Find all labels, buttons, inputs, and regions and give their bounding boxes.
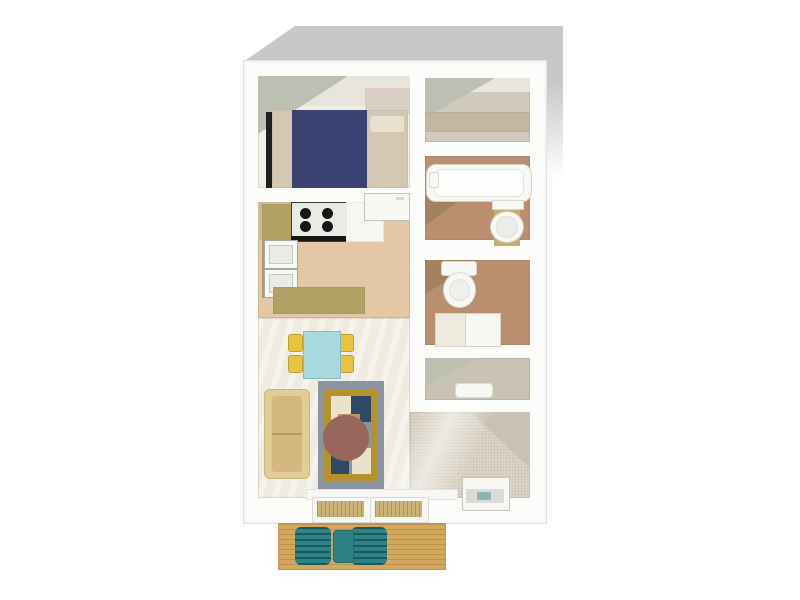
closet-upper-shelf (425, 112, 530, 132)
floor-unit-detail (477, 492, 491, 500)
rug-center-circle (323, 415, 369, 461)
dining-chair (288, 355, 303, 373)
wall-oven-upper-door (269, 245, 293, 264)
wc-cabinet-left (435, 313, 467, 347)
sliding-door-screen (375, 501, 422, 517)
bed-headboard (266, 112, 272, 188)
bed-duvet (292, 110, 367, 188)
towel-shelf (492, 200, 524, 210)
stove-burner (322, 221, 333, 232)
patio-chair (351, 527, 387, 565)
bathtub-basin (434, 169, 524, 197)
stove-burner (322, 208, 333, 219)
stove-front (291, 236, 349, 241)
floorplan-canvas (0, 0, 800, 600)
dining-chair (288, 334, 303, 352)
closet-lower-item (455, 383, 493, 398)
patio-chair (295, 527, 331, 565)
sliding-door-screen (317, 501, 364, 517)
bed-pillow (370, 116, 404, 132)
stove-burner (300, 208, 311, 219)
peninsula-counter (273, 287, 365, 314)
refrigerator-handle (396, 197, 404, 200)
wc-cabinet-right (465, 313, 501, 347)
toilet-seat (449, 279, 470, 301)
bathtub-faucet (429, 172, 439, 188)
dining-chair (339, 355, 354, 373)
sink-bowl (496, 216, 518, 238)
backdrop-shadow-top (243, 26, 563, 62)
patio-table (333, 530, 354, 563)
dining-table (303, 331, 341, 379)
dining-chair (339, 334, 354, 352)
stove-burner (300, 221, 311, 232)
sofa-cushion-line (272, 433, 302, 435)
backdrop-shadow-right (545, 30, 563, 180)
